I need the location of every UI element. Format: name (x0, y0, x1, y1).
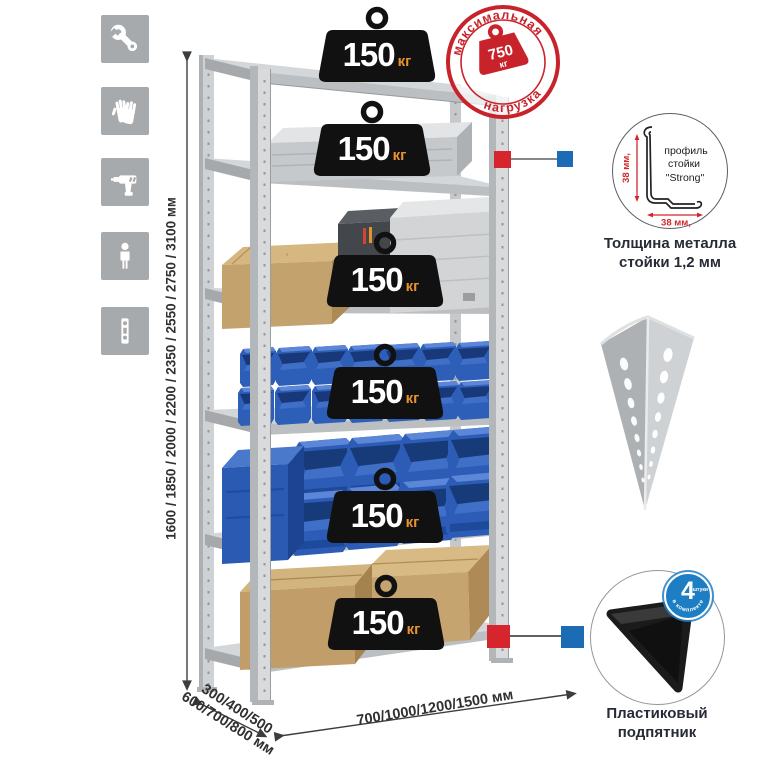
height-dimension-label: 1600 / 1850 / 2000 / 2200 / 2350 / 2550 … (164, 149, 179, 589)
profile-label-1: профиль (664, 145, 708, 157)
shelf-5-capacity-badge: 150кг (325, 465, 445, 545)
profile-caption-line2: стойки 1,2 мм (585, 253, 755, 272)
level-icon (101, 307, 149, 355)
profile-label-2: стойки (668, 158, 700, 170)
infographic-canvas: 150кг 150кг 150кг 150кг 150кг 150кг (0, 0, 765, 765)
corner-post-image (601, 317, 694, 510)
capacity-unit: кг (406, 514, 420, 531)
capacity-unit: кг (406, 278, 420, 295)
shelf-4-capacity-badge: 150кг (325, 341, 445, 421)
shelf-2-capacity-badge: 150кг (312, 98, 432, 178)
svg-text:в комплекте: в комплекте (671, 599, 706, 614)
capacity-unit: кг (398, 53, 412, 70)
profile-label-3: "Strong" (666, 172, 705, 184)
profile-dim-vertical: 38 мм, (621, 153, 632, 183)
wrench-icon (101, 15, 149, 63)
gloves-icon (101, 87, 149, 135)
capacity-value: 150 (352, 604, 404, 641)
capacity-value: 150 (351, 497, 403, 534)
foot-caption: Пластиковый подпятник (572, 704, 742, 742)
capacity-unit: кг (393, 147, 407, 164)
foot-caption-line1: Пластиковый (572, 704, 742, 723)
foot-badge-arc-text: в комплекте (671, 599, 706, 614)
drill-icon (101, 158, 149, 206)
capacity-unit: кг (407, 621, 421, 638)
capacity-value: 150 (343, 36, 395, 73)
capacity-value: 150 (338, 130, 390, 167)
shelf-6-capacity-badge: 150кг (326, 572, 446, 652)
shelf-3-capacity-badge: 150кг (325, 229, 445, 309)
profile-dim-horizontal: 38 мм, (661, 218, 691, 229)
foot-quantity-badge: 4 штуки в комплекте (664, 572, 712, 620)
person-icon (101, 232, 149, 280)
profile-caption: Толщина металла стойки 1,2 мм (585, 234, 755, 272)
profile-detail-circle: 38 мм, 38 мм, профиль стойки "Strong" (612, 113, 728, 229)
profile-callout-connector (494, 151, 573, 168)
capacity-value: 150 (351, 261, 403, 298)
foot-callout-connector (487, 625, 584, 648)
foot-caption-line2: подпятник (572, 723, 742, 742)
capacity-value: 150 (351, 373, 403, 410)
profile-caption-line1: Толщина металла (585, 234, 755, 253)
shelf-1-capacity-badge: 150кг (317, 4, 437, 84)
capacity-unit: кг (406, 390, 420, 407)
